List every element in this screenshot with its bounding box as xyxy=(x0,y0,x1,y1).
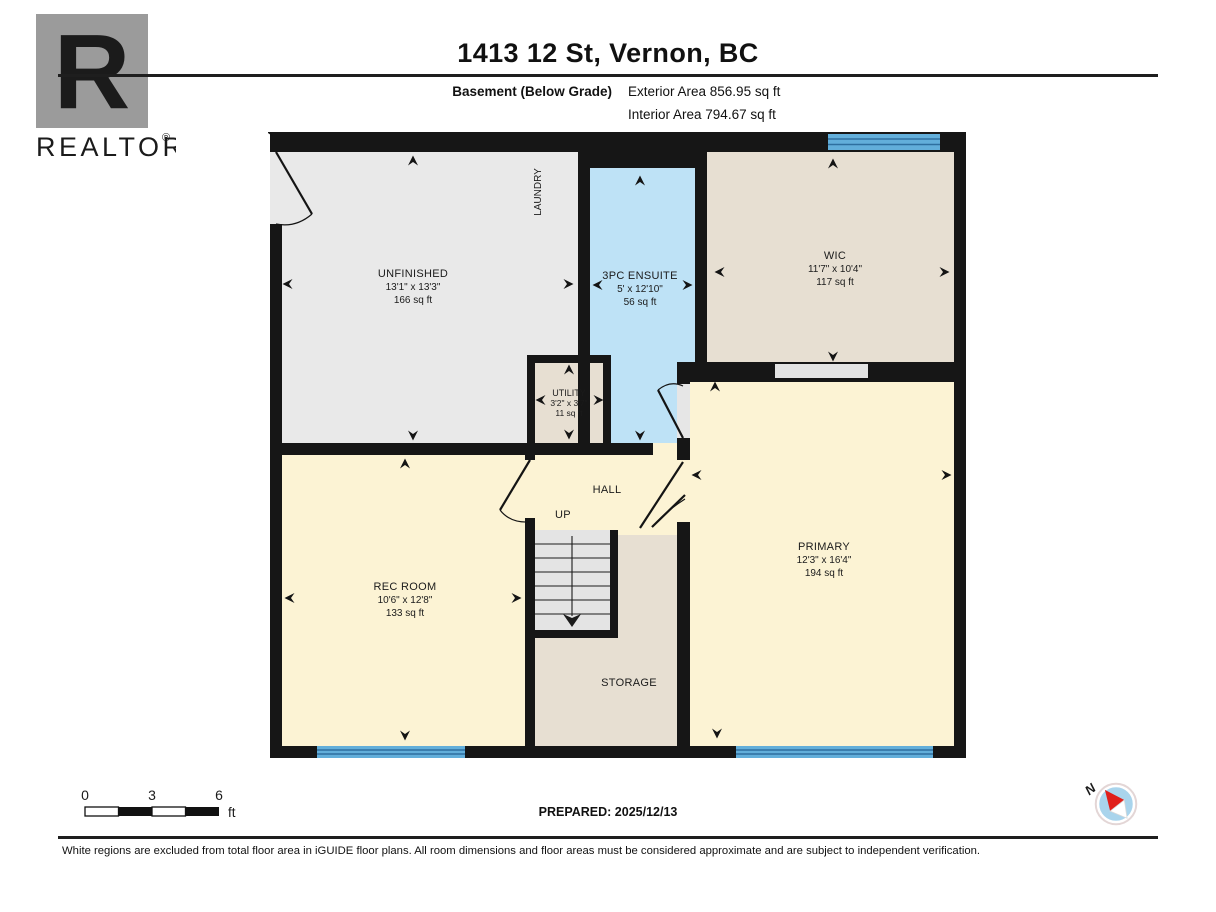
label-unfinished-area: 166 sq ft xyxy=(394,295,433,306)
label-utility-area: 11 sq ft xyxy=(555,408,583,418)
label-utility-dims: 3'2" x 3'7" xyxy=(550,398,587,408)
label-rec-dims: 10'6" x 12'8" xyxy=(378,595,433,606)
compass: N xyxy=(1078,772,1148,839)
label-wic: WIC xyxy=(824,250,846,262)
label-unfinished: UNFINISHED xyxy=(378,268,448,280)
scale-3: 3 xyxy=(148,787,156,803)
realtor-logo-wordmark: REALTOR xyxy=(36,132,176,162)
label-up: UP xyxy=(555,509,571,521)
realtor-logo-r: R xyxy=(54,13,131,131)
floor-label: Basement (Below Grade) xyxy=(0,84,612,99)
label-hall: HALL xyxy=(593,484,622,496)
label-rec-area: 133 sq ft xyxy=(386,608,425,619)
label-ensuite: 3PC ENSUITE xyxy=(602,270,677,282)
footer-divider xyxy=(58,836,1158,839)
label-primary: PRIMARY xyxy=(798,541,850,553)
interior-area: Interior Area 794.67 sq ft xyxy=(628,107,776,122)
stairs xyxy=(535,530,610,630)
label-laundry: LAUNDRY xyxy=(533,168,544,216)
floor-plan: UNFINISHED 13'1" x 13'3" 166 sq ft LAUND… xyxy=(268,132,968,765)
window-rec-bottom xyxy=(317,746,465,758)
label-primary-area: 194 sq ft xyxy=(805,568,844,579)
label-ensuite-area: 56 sq ft xyxy=(624,297,657,308)
scale-6: 6 xyxy=(215,787,223,803)
window-primary-bottom xyxy=(736,746,933,758)
label-storage: STORAGE xyxy=(601,677,657,689)
disclaimer-text: White regions are excluded from total fl… xyxy=(62,845,980,857)
label-unfinished-dims: 13'1" x 13'3" xyxy=(386,282,441,293)
realtor-logo-reg: ® xyxy=(162,132,170,144)
label-ensuite-dims: 5' x 12'10" xyxy=(617,284,663,295)
prepared-date: PREPARED: 2025/12/13 xyxy=(0,805,1216,819)
compass-north-label: N xyxy=(1082,780,1099,798)
title-divider xyxy=(58,74,1158,77)
label-rec: REC ROOM xyxy=(374,581,437,593)
label-utility: UTILITY xyxy=(552,388,586,398)
scale-0: 0 xyxy=(81,787,89,803)
label-wic-dims: 11'7" x 10'4" xyxy=(808,264,863,275)
window-wic-top xyxy=(828,134,940,150)
page-title: 1413 12 St, Vernon, BC xyxy=(0,38,1216,69)
exterior-area: Exterior Area 856.95 sq ft xyxy=(628,84,780,99)
label-primary-dims: 12'3" x 16'4" xyxy=(797,555,852,566)
label-wic-area: 117 sq ft xyxy=(816,277,854,288)
